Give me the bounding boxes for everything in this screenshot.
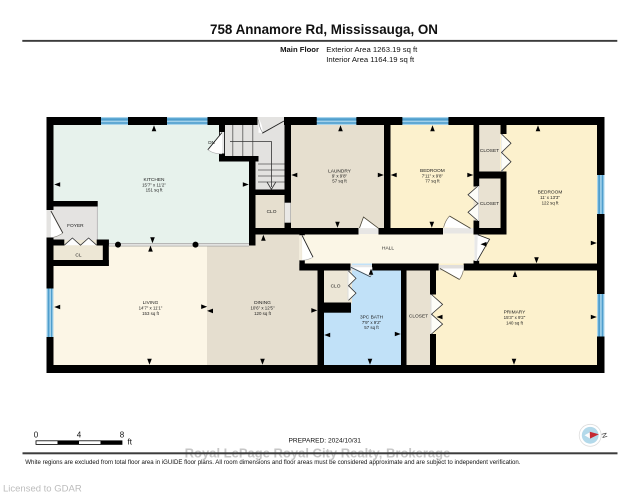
svg-text:Licensed to GDAR: Licensed to GDAR	[3, 484, 82, 494]
svg-text:0: 0	[34, 431, 39, 440]
svg-text:57 sq ft: 57 sq ft	[332, 178, 347, 183]
svg-text:CLO: CLO	[267, 209, 277, 215]
svg-text:CLOSET: CLOSET	[480, 201, 499, 207]
svg-text:10'6" x 12'5": 10'6" x 12'5"	[250, 305, 275, 310]
svg-text:57 sq ft: 57 sq ft	[364, 325, 379, 330]
svg-text:Main Floor: Main Floor	[280, 45, 319, 54]
svg-text:CLOSET: CLOSET	[480, 148, 499, 154]
svg-text:CL: CL	[75, 253, 81, 259]
svg-text:140 sq ft: 140 sq ft	[506, 321, 524, 326]
svg-text:Exterior Area 1263.19 sq ft: Exterior Area 1263.19 sq ft	[326, 45, 418, 54]
svg-text:120 sq ft: 120 sq ft	[254, 311, 272, 316]
svg-text:FOYER: FOYER	[67, 223, 84, 229]
svg-text:8: 8	[120, 431, 125, 440]
svg-text:White regions are excluded fro: White regions are excluded from total fl…	[25, 459, 521, 466]
svg-text:15'7" x 11'2": 15'7" x 11'2"	[142, 182, 166, 187]
svg-text:122 sq ft: 122 sq ft	[542, 200, 560, 205]
svg-text:77 sq ft: 77 sq ft	[425, 179, 440, 184]
svg-text:758 Annamore Rd, Mississauga,: 758 Annamore Rd, Mississauga, ON	[210, 22, 438, 37]
svg-text:14'7" x 11'1": 14'7" x 11'1"	[139, 305, 163, 310]
svg-text:11' x 13'3": 11' x 13'3"	[540, 195, 560, 200]
svg-text:CLOSET: CLOSET	[409, 314, 428, 320]
svg-text:Interior Area 1164.19 sq ft: Interior Area 1164.19 sq ft	[326, 55, 415, 64]
svg-text:4: 4	[77, 431, 82, 440]
svg-text:153 sq ft: 153 sq ft	[142, 311, 160, 316]
svg-text:PREPARED: 2024/10/31: PREPARED: 2024/10/31	[289, 438, 362, 445]
svg-text:DN: DN	[208, 140, 215, 145]
svg-text:ft: ft	[128, 438, 133, 447]
svg-text:151 sq ft: 151 sq ft	[146, 188, 164, 193]
svg-text:15'3" x 9'2": 15'3" x 9'2"	[504, 315, 526, 320]
svg-text:HALL: HALL	[382, 246, 394, 252]
svg-text:CLO: CLO	[331, 284, 341, 290]
